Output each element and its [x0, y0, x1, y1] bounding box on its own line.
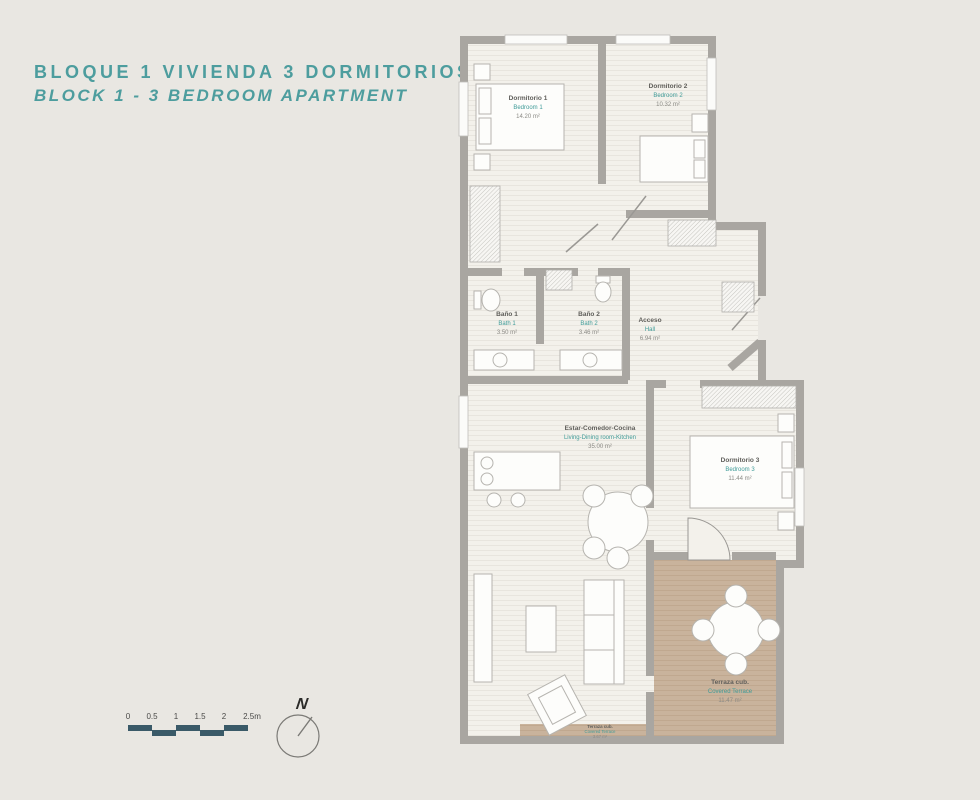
wall-bottom	[460, 736, 784, 744]
bedroom3-label-en: Bedroom 3	[725, 467, 755, 473]
scale-tick-2: 2	[222, 712, 226, 721]
kitchen-sink	[481, 473, 493, 485]
wall-bath-top-1	[466, 268, 502, 276]
bedroom1-label-en: Bedroom 1	[513, 105, 543, 111]
nightstand	[474, 154, 490, 170]
compass-icon	[272, 706, 332, 766]
terrace-label-area: 11.47 m²	[718, 698, 741, 704]
north-label: N	[295, 696, 309, 714]
bedroom1-label-area: 14.20 m²	[516, 114, 540, 120]
scale-tick-1: 1	[174, 712, 178, 721]
floor-plan: Dormitorio 1 Bedroom 1 14.20 m² Dormitor…	[0, 0, 980, 800]
bath1-label-en: Bath 1	[498, 321, 516, 327]
stool	[511, 493, 525, 507]
wall-bedroom2-bottom	[626, 210, 708, 218]
wardrobe-hall-right	[722, 282, 754, 312]
wardrobe-bedroom3	[702, 386, 796, 408]
bath1-label-es: Baño 1	[496, 311, 518, 318]
wall-hall-right-upper	[758, 222, 766, 296]
pillow	[479, 118, 491, 144]
window-left-2	[459, 396, 468, 448]
scale-segment	[224, 725, 248, 731]
wall-top	[460, 36, 716, 44]
nightstand	[474, 64, 490, 80]
pillow	[694, 140, 705, 158]
pillow	[782, 442, 792, 468]
sideboard	[474, 574, 492, 682]
scale-tick-0: 0	[126, 712, 130, 721]
nightstand	[778, 512, 794, 530]
living-label-en: Living-Dining room-Kitchen	[564, 435, 636, 441]
terrace-chair	[725, 585, 747, 607]
wall-living-right-mid	[646, 540, 654, 676]
wall-terrace-right	[776, 560, 784, 744]
scale-segment	[128, 725, 152, 731]
pillow	[782, 472, 792, 498]
sofa-back	[614, 580, 624, 684]
scale-segment	[152, 730, 176, 736]
bedroom2-label-en: Bedroom 2	[653, 93, 683, 99]
wall-bedroom-divider	[598, 36, 606, 184]
wall-living-right-lower	[646, 692, 654, 740]
dining-chair	[607, 547, 629, 569]
terrace-label-es: Terraza cub.	[711, 679, 749, 686]
bath1-label-area: 3.50 m²	[497, 330, 517, 336]
scale-tick-25: 2.5m	[243, 712, 261, 721]
pillow	[694, 160, 705, 178]
nightstand	[778, 414, 794, 432]
pillow	[479, 88, 491, 114]
scale-tick-15: 1.5	[194, 712, 205, 721]
toilet-bath2	[595, 282, 611, 302]
kitchen-sink	[481, 457, 493, 469]
scale-segment	[200, 730, 224, 736]
bath2-label-area: 3.46 m²	[579, 330, 599, 336]
terrace-label-en: Covered Terrace	[708, 689, 753, 695]
window-top-2	[616, 35, 670, 44]
coffee-table	[526, 606, 556, 652]
terrace-chair	[692, 619, 714, 641]
terrace-chair	[758, 619, 780, 641]
window-left-1	[459, 82, 468, 136]
living-label-es: Estar-Comedor-Cocina	[565, 425, 636, 432]
wall-hall-top	[708, 222, 766, 230]
toilet-bath1	[482, 289, 500, 311]
wardrobe-bedroom1	[470, 186, 500, 262]
dining-chair	[583, 485, 605, 507]
compass-needle	[298, 717, 312, 736]
terrace-strip-label-area: 3.67 m²	[593, 734, 608, 739]
toilet-tank-bath1	[474, 291, 481, 309]
dining-chair	[631, 485, 653, 507]
wall-bath-bottom	[466, 376, 628, 384]
wall-wing-top-left	[646, 380, 666, 388]
bedroom3-label-es: Dormitorio 3	[721, 457, 760, 464]
bedroom2-label-es: Dormitorio 2	[649, 83, 688, 90]
dining-chair	[583, 537, 605, 559]
wardrobe-bath2	[546, 270, 572, 290]
window-right-1	[707, 58, 716, 110]
wall-terrace-top-right	[732, 552, 776, 560]
stool	[487, 493, 501, 507]
bedroom3-label-area: 11.44 m²	[728, 476, 751, 482]
wardrobe-hall-top	[668, 220, 716, 246]
scale-tick-05: 0.5	[146, 712, 157, 721]
bath2-label-en: Bath 2	[580, 321, 598, 327]
living-label-area: 35.00 m²	[588, 444, 612, 450]
hall-label-en: Hall	[645, 327, 655, 333]
wall-bath-divider	[536, 268, 544, 344]
nightstand	[692, 114, 708, 132]
wall-left	[460, 36, 468, 744]
terrace-chair	[725, 653, 747, 675]
hall-label-area: 6.94 m²	[640, 336, 660, 342]
bedroom2-label-area: 10.32 m²	[656, 102, 680, 108]
wall-bath-right	[622, 268, 630, 380]
bath2-label-es: Baño 2	[578, 311, 600, 318]
hall-label-es: Acceso	[638, 317, 661, 324]
terrace-table	[708, 602, 764, 658]
sink-bath1	[493, 353, 507, 367]
bedroom1-label-es: Dormitorio 1	[509, 95, 548, 102]
window-top-1	[505, 35, 567, 44]
sink-bath2	[583, 353, 597, 367]
window-bedroom3	[795, 468, 804, 526]
scale-segment	[176, 725, 200, 731]
wall-terrace-top-left	[652, 552, 688, 560]
